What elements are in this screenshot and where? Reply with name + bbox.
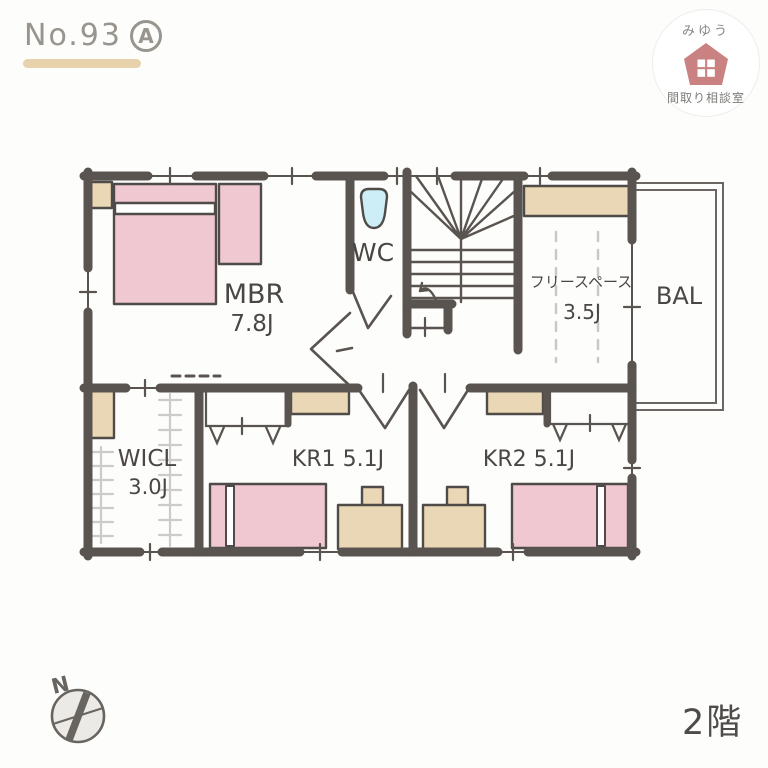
mbr-bed-sheet-band [115, 203, 215, 214]
kr2-desk [423, 505, 485, 549]
wc-door [353, 292, 391, 328]
balcony-label: BAL [656, 282, 703, 310]
free-space-dashed-lines [556, 232, 598, 362]
kr2-label: KR2 5.1J [483, 447, 575, 472]
mbr-door [311, 313, 352, 384]
toilet-icon [361, 189, 387, 228]
kr1-desk [338, 505, 402, 549]
kr1-label: KR1 5.1J [292, 447, 384, 472]
free-space-closet [524, 186, 632, 216]
kr1-chair [362, 487, 383, 506]
free-space-label: フリースペース [530, 273, 632, 291]
kr2-shelf [487, 390, 543, 414]
kr2-chair [447, 487, 468, 506]
mbr-side-mattress [219, 184, 261, 264]
compass-north-label: N [49, 671, 72, 699]
mbr-label: MBR [224, 279, 285, 310]
wc-label: WC [352, 238, 394, 267]
wicl-size: 3.0J [128, 475, 168, 499]
floor-label: 2階 [682, 694, 743, 745]
kr2-door [420, 390, 468, 428]
kr1-bed-pillow-line [226, 486, 234, 546]
kr2-bed [512, 484, 628, 548]
wicl-label: WICL [118, 446, 177, 472]
closets [206, 390, 630, 443]
kr2-bed-pillow-line [597, 486, 605, 546]
kr1-closet-hangers [210, 427, 280, 443]
kr1-shelf [291, 390, 349, 414]
free-space-size: 3.5J [563, 300, 601, 324]
floor-plan: MBR 7.8J WC フリースペース 3.5J BAL WICL 3.0J K… [0, 0, 768, 768]
kr1-door [359, 390, 409, 428]
kr1-closet [206, 390, 286, 426]
compass-rose-icon: N [49, 671, 104, 742]
mbr-size: 7.8J [230, 311, 273, 337]
